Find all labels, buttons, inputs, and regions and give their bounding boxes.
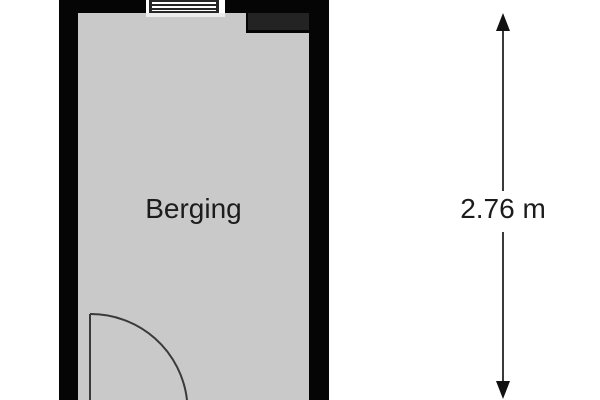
room-label: Berging <box>78 195 309 223</box>
arrow-down-icon <box>496 381 510 399</box>
arrow-up-icon <box>496 13 510 31</box>
floorplan-canvas: Berging 2.76 m <box>0 0 600 400</box>
door-swing-arc <box>90 314 187 400</box>
dimension-label: 2.76 m <box>428 195 578 223</box>
